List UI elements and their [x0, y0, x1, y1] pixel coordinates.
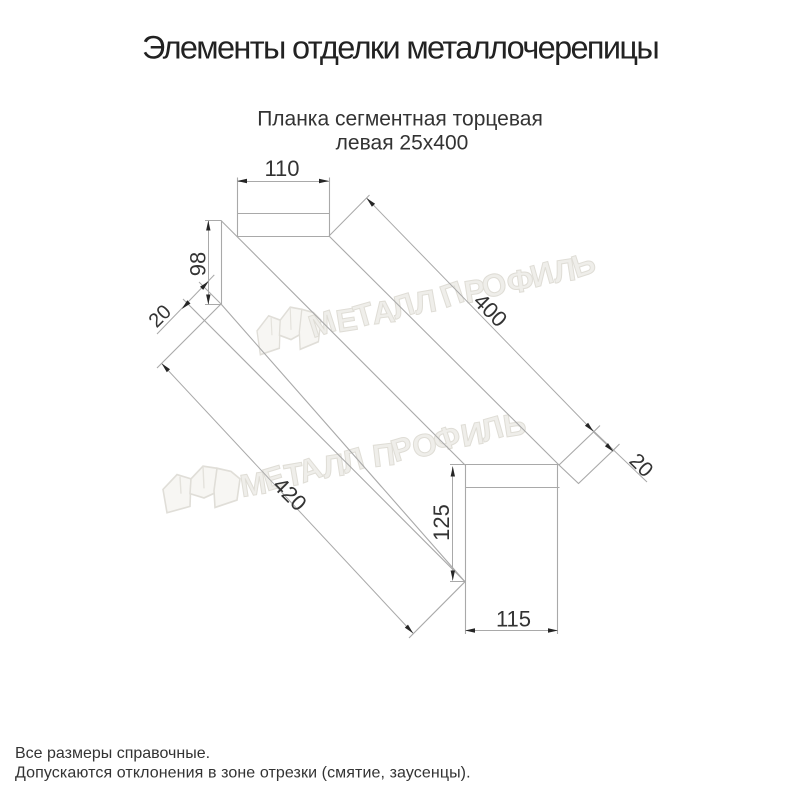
svg-text:125: 125	[429, 504, 454, 541]
svg-text:левая 25х400: левая 25х400	[336, 132, 469, 155]
svg-text:Элементы отделки металлочерепи: Элементы отделки металлочерепицы	[142, 30, 658, 66]
svg-text:МЕТАЛЛ ПРОФИЛЬ: МЕТАЛЛ ПРОФИЛЬ	[304, 243, 600, 348]
svg-text:Допускаются отклонения в зоне: Допускаются отклонения в зоне отрезки (с…	[15, 765, 471, 782]
svg-text:98: 98	[186, 252, 211, 276]
svg-text:20: 20	[145, 301, 176, 332]
svg-text:Все размеры справочные.: Все размеры справочные.	[15, 745, 210, 762]
svg-text:115: 115	[496, 607, 531, 632]
svg-text:Планка сегментная торцевая: Планка сегментная торцевая	[257, 108, 543, 131]
svg-text:20: 20	[625, 449, 658, 482]
svg-text:110: 110	[264, 156, 299, 181]
